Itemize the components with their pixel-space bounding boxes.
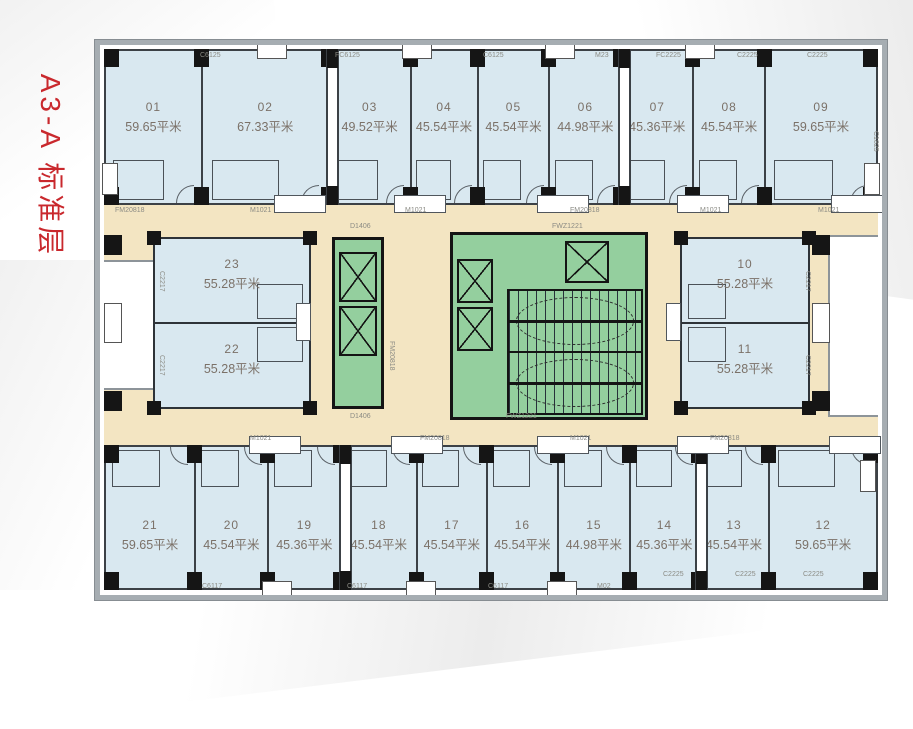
window-icon	[262, 581, 292, 597]
room-label: 04 45.54平米	[412, 100, 477, 135]
room-label: 12 59.65平米	[770, 518, 876, 553]
column	[479, 445, 494, 463]
room-number: 01	[106, 100, 201, 114]
column	[757, 187, 772, 205]
room-label: 21 59.65平米	[106, 518, 194, 553]
room-area: 45.54平米	[694, 116, 764, 135]
plan-title: A3-A 标准层	[32, 41, 72, 291]
door-code-label: FM20818	[388, 341, 395, 371]
room: 11 55.28平米	[682, 322, 808, 407]
service-shaft	[326, 49, 339, 205]
column	[187, 445, 202, 463]
room-number: 14	[631, 518, 698, 532]
room-number: 06	[550, 100, 620, 114]
column	[147, 401, 161, 415]
room-area: 55.28平米	[682, 358, 808, 377]
bathroom-partition	[636, 450, 672, 487]
entry-door-box	[274, 195, 326, 213]
window-icon	[864, 163, 880, 195]
bathroom-partition	[112, 450, 160, 487]
column	[470, 187, 485, 205]
column	[104, 445, 119, 463]
column	[187, 572, 202, 590]
column	[303, 401, 317, 415]
column	[674, 231, 688, 245]
central-core	[450, 232, 648, 420]
room-area: 45.36平米	[269, 534, 340, 553]
room-area: 45.54平米	[700, 534, 769, 553]
room: 02 67.33平米	[201, 51, 328, 203]
room-area: 67.33平米	[203, 116, 328, 135]
room-number: 23	[155, 257, 309, 271]
window-icon	[257, 43, 287, 59]
bathroom-partition	[483, 160, 521, 200]
room: 15 44.98平米	[557, 447, 630, 588]
room-area: 55.28平米	[155, 273, 309, 292]
column	[761, 572, 776, 590]
room: 19 45.36平米	[267, 447, 340, 588]
room-label: 02 67.33平米	[203, 100, 328, 135]
elevator-icon	[565, 241, 609, 283]
room-label: 06 44.98平米	[550, 100, 620, 135]
door-code-label: M1021	[818, 207, 839, 214]
room-number: 07	[622, 100, 692, 114]
room-label: 01 59.65平米	[106, 100, 201, 135]
door-code-label: M1021	[250, 207, 271, 214]
wall-code-label: C6117	[347, 583, 367, 590]
wall-code-label: C2225	[803, 571, 824, 578]
room: 05 45.54平米	[477, 51, 549, 203]
room-number: 17	[418, 518, 487, 532]
bathroom-partition	[774, 160, 833, 200]
service-shaft	[618, 49, 631, 205]
room: 22 55.28平米	[155, 322, 309, 407]
room-number: 02	[203, 100, 328, 114]
bathroom-partition	[493, 450, 530, 487]
wall-code-label: C2225	[807, 52, 828, 59]
room-label: 03 49.52平米	[330, 100, 410, 135]
room-label: 13 45.54平米	[700, 518, 769, 553]
room: 17 45.54平米	[416, 447, 487, 588]
room: 16 45.54平米	[486, 447, 557, 588]
room-label: 23 55.28平米	[155, 257, 309, 292]
room-number: 20	[196, 518, 267, 532]
wall-code-label: M23	[595, 52, 609, 59]
elevator-icon	[339, 252, 377, 302]
column	[674, 401, 688, 415]
room-label: 22 55.28平米	[155, 342, 309, 377]
room-area: 44.98平米	[559, 534, 630, 553]
wall-code-label: C6117	[202, 583, 222, 590]
room-area: 45.54平米	[418, 534, 487, 553]
window-icon	[812, 303, 830, 343]
elevator-icon	[339, 306, 377, 356]
column	[622, 445, 637, 463]
wall-code-label: C6125	[200, 52, 221, 59]
room: 10 55.28平米	[682, 239, 808, 322]
room-area: 59.65平米	[106, 116, 201, 135]
room-number: 16	[488, 518, 557, 532]
bathroom-partition	[564, 450, 602, 487]
window-icon	[545, 43, 575, 59]
room: 20 45.54平米	[194, 447, 267, 588]
door-code-label: M1021	[405, 207, 426, 214]
wall-code-label: M02	[597, 583, 611, 590]
room-number: 18	[342, 518, 415, 532]
wall-code-label: C2217	[158, 271, 165, 292]
room-number: 21	[106, 518, 194, 532]
room-label: 10 55.28平米	[682, 257, 808, 292]
room-label: 16 45.54平米	[488, 518, 557, 553]
room-area: 45.54平米	[479, 116, 549, 135]
stair-flight	[509, 351, 641, 413]
room-area: 44.98平米	[550, 116, 620, 135]
room-number: 08	[694, 100, 764, 114]
room-number: 05	[479, 100, 549, 114]
room-label: 18 45.54平米	[342, 518, 415, 553]
room-label: 08 45.54平米	[694, 100, 764, 135]
column	[194, 187, 209, 205]
window-icon	[685, 43, 715, 59]
column	[147, 231, 161, 245]
room-area: 49.52平米	[330, 116, 410, 135]
room-area: 45.54平米	[342, 534, 415, 553]
service-shaft	[339, 445, 352, 590]
room-label: 09 59.65平米	[766, 100, 876, 135]
room: 07 45.36平米	[620, 51, 692, 203]
bathroom-partition	[347, 450, 387, 487]
room-area: 45.54平米	[196, 534, 267, 553]
room-area: 45.36平米	[622, 116, 692, 135]
column	[303, 231, 317, 245]
room-area: 55.28平米	[682, 273, 808, 292]
door-code-label: M1021	[700, 207, 721, 214]
bathroom-partition	[201, 450, 239, 487]
room-label: 07 45.36平米	[622, 100, 692, 135]
window-icon	[104, 303, 122, 343]
bottom-room-strip: 21 59.65平米 20 45.54平米 19 45.	[104, 445, 878, 590]
room-number: 04	[412, 100, 477, 114]
door-arc	[176, 185, 194, 203]
column	[757, 49, 772, 67]
unit-entry-door	[296, 303, 311, 341]
room-label: 11 55.28平米	[682, 342, 808, 377]
room-label: 17 45.54平米	[418, 518, 487, 553]
room-area: 45.54平米	[488, 534, 557, 553]
wall-code-label: FC6125	[335, 52, 360, 59]
column	[802, 231, 816, 245]
room: 08 45.54平米	[692, 51, 764, 203]
elevator-icon	[457, 307, 493, 351]
column	[761, 445, 776, 463]
window-icon	[402, 43, 432, 59]
room: 13 45.54平米	[698, 447, 769, 588]
room-area: 55.28平米	[155, 358, 309, 377]
door-arc	[170, 447, 188, 465]
door-code-label: D1406	[350, 223, 371, 230]
room-label: 15 44.98平米	[559, 518, 630, 553]
staircase	[507, 289, 643, 415]
window-icon	[860, 460, 876, 492]
column	[104, 572, 119, 590]
column	[802, 401, 816, 415]
wall-code-label: C2217	[158, 355, 165, 376]
column	[104, 49, 119, 67]
window-icon	[547, 581, 577, 597]
wall-code-label: C2225	[663, 571, 684, 578]
room: 23 55.28平米	[155, 239, 309, 322]
room: 21 59.65平米	[106, 447, 194, 588]
room: 01 59.65平米	[106, 51, 201, 203]
wall-code-label: FC2225	[656, 52, 681, 59]
room-label: 14 45.36平米	[631, 518, 698, 553]
window-icon	[102, 163, 118, 195]
unit-right: 10 55.28平米 11 55.28平米	[680, 237, 810, 409]
door-code-label: FM20818	[710, 435, 740, 442]
bathroom-partition	[422, 450, 459, 487]
unit-left: 23 55.28平米 22 55.28平米	[153, 237, 311, 409]
top-room-strip: 01 59.65平米 02 67.33平米 03 49.	[104, 49, 878, 205]
room-area: 59.65平米	[106, 534, 194, 553]
door-code-label: FM20818	[570, 207, 600, 214]
room-area: 59.65平米	[766, 116, 876, 135]
bathroom-partition	[627, 160, 665, 200]
bathroom-partition	[335, 160, 378, 200]
room-number: 11	[682, 342, 808, 356]
wall-code-label: C2217	[804, 271, 811, 292]
stair-flight	[509, 291, 641, 351]
building-notch	[828, 235, 878, 417]
wall-code-label: C2225	[737, 52, 758, 59]
room-number: 22	[155, 342, 309, 356]
bathroom-partition	[212, 160, 279, 200]
unit-entry-door	[666, 303, 681, 341]
room-number: 19	[269, 518, 340, 532]
room-label: 19 45.36平米	[269, 518, 340, 553]
room: 06 44.98平米	[548, 51, 620, 203]
room: 03 49.52平米	[328, 51, 410, 203]
room-number: 15	[559, 518, 630, 532]
room-number: 12	[770, 518, 876, 532]
column	[104, 391, 122, 411]
wall-code-label: C2217	[804, 355, 811, 376]
bathroom-partition	[705, 450, 742, 487]
room-number: 13	[700, 518, 769, 532]
door-code-label: M1021	[250, 435, 271, 442]
room-number: 10	[682, 257, 808, 271]
door-code-label: FM20818	[420, 435, 450, 442]
service-shaft	[695, 445, 708, 590]
wall-code-label: C2225	[735, 571, 756, 578]
bathroom-partition	[113, 160, 164, 200]
room-label: 05 45.54平米	[479, 100, 549, 135]
wall-code-label: C6125	[483, 52, 504, 59]
door-code-label: D1406	[350, 413, 371, 420]
entry-door-box	[829, 436, 881, 454]
door-code-label: M1021	[570, 435, 591, 442]
room: 09 59.65平米	[764, 51, 876, 203]
elevator-icon	[457, 259, 493, 303]
floor-plan: 01 59.65平米 02 67.33平米 03 49.	[95, 40, 887, 600]
door-code-label: FWZ1221	[552, 223, 583, 230]
window-icon	[406, 581, 436, 597]
room-number: 09	[766, 100, 876, 114]
door-code-label: FM20818	[115, 207, 145, 214]
room: 14 45.36平米	[629, 447, 698, 588]
bathroom-partition	[274, 450, 313, 487]
room-area: 45.36平米	[631, 534, 698, 553]
wall-code-label: C1825	[872, 131, 879, 152]
column	[104, 235, 122, 255]
room: 04 45.54平米	[410, 51, 477, 203]
bathroom-partition	[778, 450, 835, 487]
room-number: 03	[330, 100, 410, 114]
column	[622, 572, 637, 590]
wall-code-label: C6117	[488, 583, 508, 590]
room-label: 20 45.54平米	[196, 518, 267, 553]
door-code-label: FWZ1221	[506, 413, 537, 420]
room-area: 59.65平米	[770, 534, 876, 553]
room-area: 45.54平米	[412, 116, 477, 135]
elevator-core-left	[332, 237, 384, 409]
